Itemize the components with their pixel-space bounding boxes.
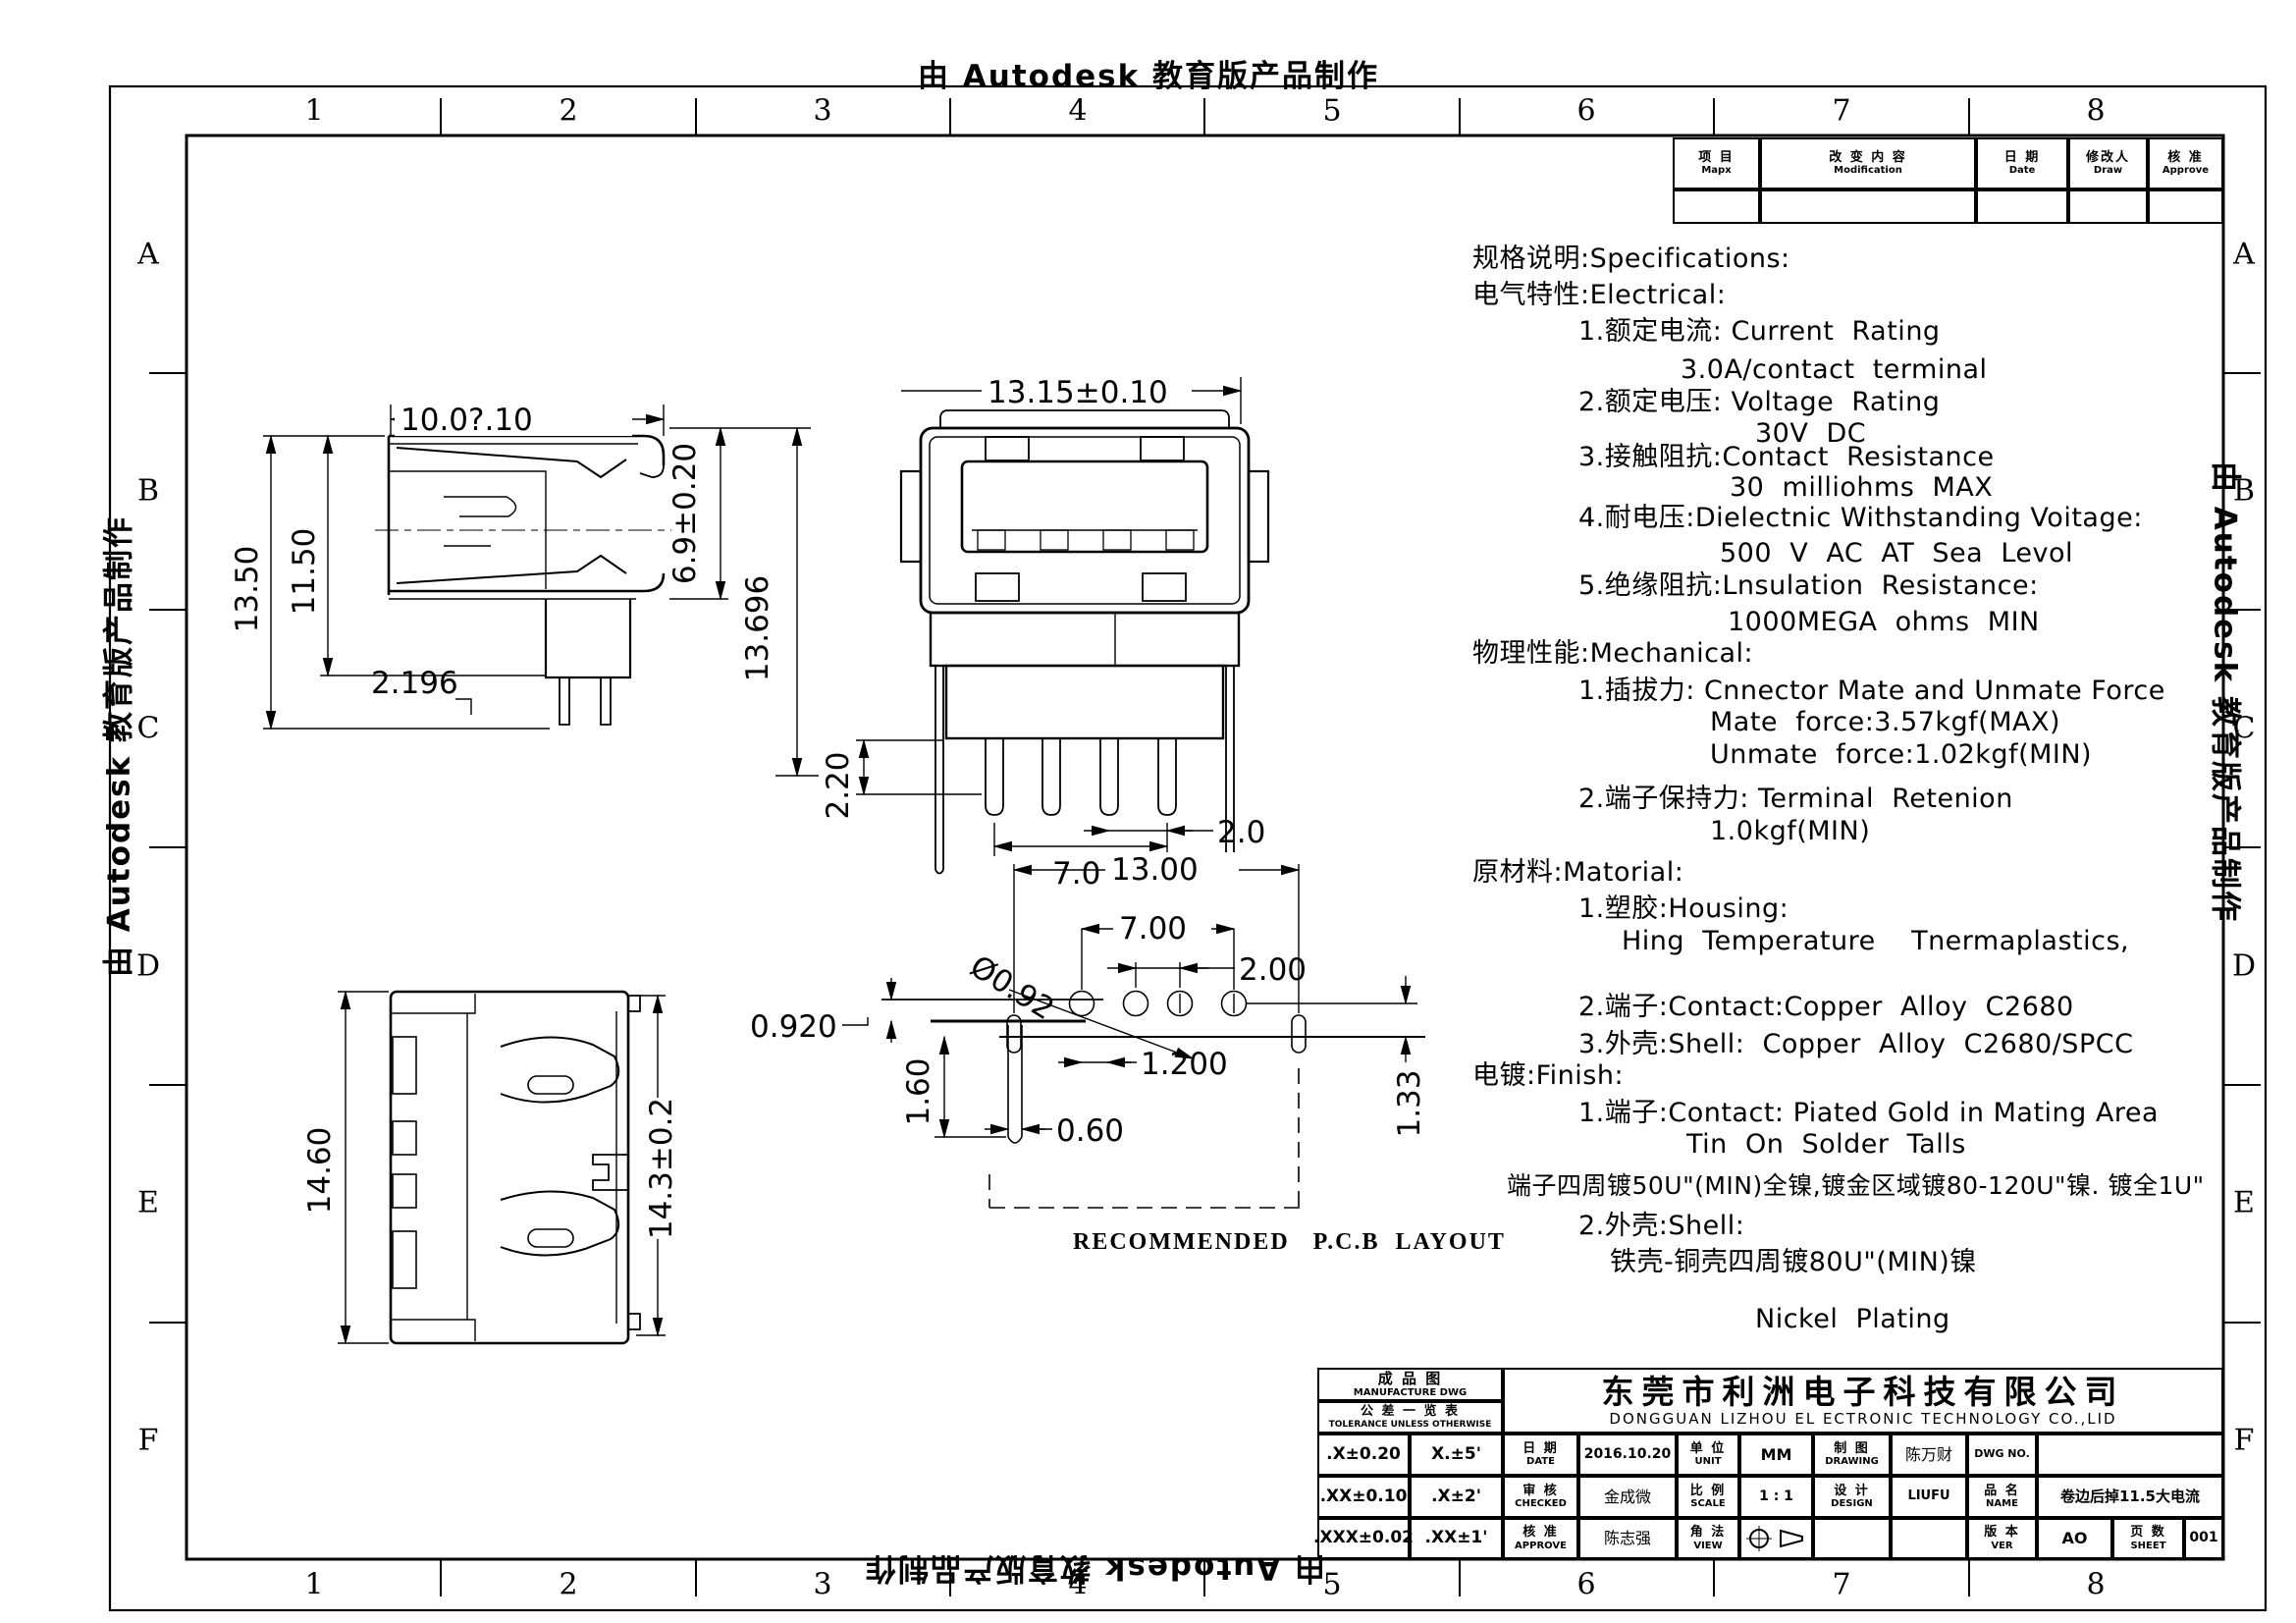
dim-pcb-slot-h: 1.60 (901, 1057, 936, 1125)
company-name-cn: 东莞市利洲电子科技有限公司 (1602, 1375, 2125, 1411)
dim-front-height: 6.9±0.20 (667, 443, 703, 584)
titleblock-date-value: 2016.10.20 (1578, 1434, 1677, 1476)
spec-line: Unmate force:1.02kgf(MIN) (1710, 741, 2092, 768)
titleblock-manufacture-dwg: 成 品 图 MANUFACTURE DWG (1317, 1368, 1503, 1401)
titleblock-company: 东莞市利洲电子科技有限公司 DONGGUAN LIZHOU EL ECTRONI… (1503, 1368, 2223, 1434)
spec-line: Nickel Plating (1755, 1306, 1950, 1332)
side-view-drawing: 10.0?.10 13.50 11.50 2.196 6.9± (230, 402, 819, 776)
tolerance-en: TOLERANCE UNLESS OTHERWISE (1329, 1420, 1492, 1430)
titleblock-empty-cell (1891, 1518, 1967, 1559)
spec-line: 30 milliohms MAX (1730, 474, 1993, 501)
dim-rear-height: 14.60 (302, 1127, 338, 1215)
revision-col-modification: 改 变 内 容 Modification (1760, 137, 1976, 189)
revision-col-item: 项 目 Mapx (1673, 137, 1760, 189)
titleblock-name-label: 品 名NAME (1967, 1476, 2037, 1518)
revision-col-draw-cn: 修改人 (2086, 151, 2130, 166)
dim-pcb-slot-w: 0.60 (1056, 1113, 1124, 1149)
spec-line: 规格说明:Specifications: (1472, 245, 1790, 272)
spec-line: 3.外壳:Shell: Copper Alloy C2680/SPCC (1578, 1031, 2133, 1057)
spec-line: Mate force:3.57kgf(MAX) (1710, 709, 2060, 735)
spec-line: 1.端子:Contact: Piated Gold in Mating Area (1578, 1100, 2159, 1126)
dim-pcb-span: 7.00 (1119, 911, 1187, 947)
rear-view-drawing: 14.60 14.3±0.2 (302, 992, 679, 1343)
spec-line: 4.耐电压:Dielectnic Withstanding Voitage: (1578, 505, 2143, 531)
titleblock-design-value: LIUFU (1891, 1476, 1967, 1518)
spec-line: 1.插拔力: Cnnector Mate and Unmate Force (1578, 677, 2165, 704)
dim-front-pin-pitch: 2.0 (1217, 815, 1265, 850)
revision-empty-cell (2068, 189, 2148, 224)
titleblock-view-symbol (1739, 1518, 1813, 1559)
dim-pcb-offset: 0.920 (750, 1009, 837, 1045)
titleblock-view-label: 角 法VIEW (1677, 1518, 1739, 1559)
dim-side-note: 2.196 (371, 666, 458, 701)
manufacture-dwg-cn: 成 品 图 (1378, 1371, 1442, 1387)
spec-line: Tin On Solder Talls (1686, 1131, 1966, 1158)
titleblock-design-label: 设 计DESIGN (1813, 1476, 1891, 1518)
dim-side-h2: 11.50 (287, 528, 322, 616)
spec-line: 电气特性:Electrical: (1472, 282, 1726, 308)
tolerance-r2c1: .XX±0.10 (1317, 1476, 1410, 1518)
dim-front-pin-span: 7.0 (1052, 856, 1100, 892)
spec-line: 2.端子:Contact:Copper Alloy C2680 (1578, 994, 2074, 1020)
revision-col-approve-cn: 核 准 (2167, 151, 2204, 166)
titleblock-dwgno-value (2037, 1434, 2223, 1476)
titleblock-sheet-label: 页 数SHEET (2112, 1518, 2184, 1559)
dim-pcb-pitch: 2.00 (1239, 952, 1307, 988)
revision-col-date-cn: 日 期 (2004, 151, 2041, 166)
spec-line: Hing Temperature Tnermaplastics, (1622, 928, 2129, 954)
revision-empty-cell (1673, 189, 1760, 224)
dim-front-width: 13.15±0.10 (988, 375, 1168, 410)
titleblock-checked-label: 审 核CHECKED (1503, 1476, 1578, 1518)
titleblock-unit-label: 单 位UNIT (1677, 1434, 1739, 1476)
titleblock-checked-value: 金成微 (1578, 1476, 1677, 1518)
titleblock-approve-label: 核 准APPROVE (1503, 1518, 1578, 1559)
titleblock-drawing-value: 陈万财 (1891, 1434, 1967, 1476)
dim-pcb-width: 13.00 (1111, 852, 1199, 888)
titleblock-sheet-value: 001 (2184, 1518, 2223, 1559)
titleblock-empty-cell (1813, 1518, 1891, 1559)
spec-line: 1.0kgf(MIN) (1710, 818, 1870, 844)
spec-line: 电镀:Finish: (1472, 1062, 1624, 1089)
spec-line: 3.0A/contact terminal (1681, 356, 1988, 383)
third-angle-projection-icon (1745, 1524, 1808, 1553)
tolerance-r3c1: .XXX±0.02 (1317, 1518, 1410, 1559)
dim-pcb-p: 1.200 (1141, 1047, 1228, 1082)
tolerance-r1c2: X.±5' (1410, 1434, 1503, 1476)
dim-pcb-d: 1.33 (1392, 1069, 1427, 1137)
spec-line: 物理性能:Mechanical: (1472, 640, 1753, 667)
revision-empty-cell (1760, 189, 1976, 224)
titleblock-name-value: 卷边后掉11.5大电流 (2037, 1476, 2223, 1518)
pcb-layout-drawing: 13.00 7.00 2.00 Ø0.92 0.920 (750, 852, 1427, 1208)
tolerance-r3c2: .XX±1' (1410, 1518, 1503, 1559)
spec-line: 铁壳-铜壳四周镀80U"(MIN)镍 (1610, 1249, 1977, 1275)
revision-col-approve: 核 准 Approve (2148, 137, 2223, 189)
dim-front-pin-offset: 2.20 (821, 751, 856, 819)
revision-col-draw-en: Draw (2094, 165, 2122, 176)
revision-empty-cell (1976, 189, 2068, 224)
titleblock-tolerance: 公 差 一 览 表 TOLERANCE UNLESS OTHERWISE (1317, 1401, 1503, 1434)
titleblock-ver-label: 版 本VER (1967, 1518, 2037, 1559)
tolerance-cn: 公 差 一 览 表 (1361, 1405, 1460, 1420)
titleblock-dwgno-label: DWG NO. (1967, 1434, 2037, 1476)
titleblock-drawing-label: 制 图DRAWING (1813, 1434, 1891, 1476)
revision-col-date-en: Date (2009, 165, 2036, 176)
tolerance-r2c2: .X±2' (1410, 1476, 1503, 1518)
spec-line: 2.端子保持力: Terminal Retenion (1578, 785, 2013, 812)
tolerance-r1c1: .X±0.20 (1317, 1434, 1410, 1476)
titleblock-approve-value: 陈志强 (1578, 1518, 1677, 1559)
spec-line: 2.额定电压: Voltage Rating (1578, 389, 1940, 415)
revision-empty-cell (2148, 189, 2223, 224)
dim-front-total: 13.696 (740, 575, 775, 681)
dim-side-h1: 13.50 (230, 546, 265, 633)
front-view-drawing: 13.15±0.10 2.20 7.0 2.0 (821, 373, 1268, 892)
pcb-layout-caption: RECOMMENDED P.C.B LAYOUT (1073, 1229, 1506, 1256)
spec-line: 1000MEGA ohms MIN (1728, 609, 2040, 635)
titleblock-scale-value: 1 : 1 (1739, 1476, 1813, 1518)
revision-col-modification-cn: 改 变 内 容 (1829, 151, 1907, 166)
titleblock-scale-label: 比 例SCALE (1677, 1476, 1739, 1518)
spec-line: 端子四周镀50U"(MIN)全镍,镀金区域镀80-120U"镍. 镀全1U" (1507, 1173, 2205, 1198)
spec-line: 1.额定电流: Current Rating (1578, 318, 1941, 345)
dim-side-width: 10.0?.10 (400, 403, 533, 438)
revision-col-approve-en: Approve (2163, 165, 2209, 176)
drawing-sheet: 1 2 3 4 5 6 7 8 1 2 3 4 5 6 7 8 A B C D … (0, 0, 2296, 1623)
revision-col-item-cn: 项 目 (1698, 151, 1735, 166)
spec-line: 5.绝缘阻抗:Lnsulation Resistance: (1578, 572, 2039, 599)
titleblock-unit-value: MM (1739, 1434, 1813, 1476)
spec-line: 3.接触阻抗:Contact Resistance (1578, 444, 1995, 470)
revision-col-date: 日 期 Date (1976, 137, 2068, 189)
manufacture-dwg-en: MANUFACTURE DWG (1354, 1387, 1467, 1398)
company-name-en: DONGGUAN LIZHOU EL ECTRONIC TECHNOLOGY C… (1609, 1411, 2116, 1428)
titleblock-ver-value: AO (2037, 1518, 2112, 1559)
spec-line: 500 V AC AT Sea Levol (1720, 540, 2073, 567)
revision-col-item-en: Mapx (1701, 165, 1731, 176)
revision-col-modification-en: Modification (1834, 165, 1902, 176)
titleblock-date-label: 日 期DATE (1503, 1434, 1578, 1476)
revision-col-draw: 修改人 Draw (2068, 137, 2148, 189)
spec-line: 1.塑胶:Housing: (1578, 895, 1789, 922)
spec-line: 2.外壳:Shell: (1578, 1213, 1744, 1239)
dim-rear-height2: 14.3±0.2 (644, 1098, 679, 1239)
spec-line: 原材料:Matorial: (1472, 859, 1683, 886)
